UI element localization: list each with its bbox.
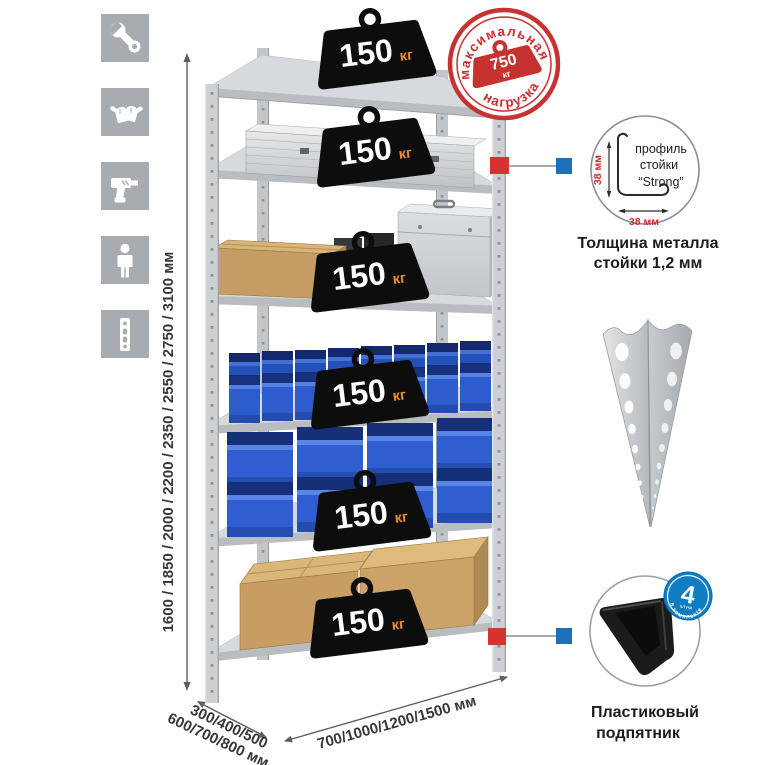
shelving-infographic: 1600 / 1850 / 2000 / 2200 / 2350 / 2550 … [0,0,765,765]
drill-icon [101,162,149,210]
profile-dim-horizontal: 38 мм [629,216,659,228]
rack-post-front-right [492,104,506,672]
callout-marker-top [490,157,572,174]
foot-caption: Пластиковый [591,704,699,721]
gloves-icon [101,88,149,136]
svg-text:кг: кг [394,509,409,527]
svg-text:150: 150 [336,130,393,172]
profile-dim-vertical: 38 мм [592,155,604,185]
svg-text:150: 150 [330,255,387,297]
depth-dimension: 300/400/500 600/700/800 мм [165,694,279,765]
sidebar-icons [101,14,149,358]
svg-text:“Strong”: “Strong” [638,175,683,189]
metal-post-image [603,320,692,527]
svg-text:стойки: стойки [640,158,678,172]
rack-post-icon [101,310,149,358]
width-dimension-label: 700/1000/1200/1500 мм [316,693,479,753]
svg-text:подпятник: подпятник [596,725,681,742]
badge-load-unit: кг [399,47,414,65]
svg-text:кг: кг [391,616,406,634]
foot-detail: 4 штуки в комплекте Пластиковый подпятни… [590,568,716,742]
svg-text:150: 150 [330,372,387,414]
svg-text:кг: кг [398,145,413,163]
weight-badge: 150 кг [309,102,436,188]
height-dimension-label: 1600 / 1850 / 2000 / 2200 / 2350 / 2550 … [160,252,177,633]
svg-text:стойки 1,2 мм: стойки 1,2 мм [594,255,703,272]
callout-marker-bottom [488,628,572,645]
svg-text:кг: кг [392,270,407,288]
person-icon [101,236,149,284]
infographic-canvas: 1600 / 1850 / 2000 / 2200 / 2350 / 2550 … [0,0,765,765]
svg-text:150: 150 [332,494,389,536]
svg-text:кг: кг [392,387,407,405]
badge-load-value: 150 [337,32,394,74]
height-dimension: 1600 / 1850 / 2000 / 2200 / 2350 / 2550 … [160,53,191,691]
svg-text:150: 150 [329,601,386,643]
weight-badge: 150 кг [310,4,437,90]
profile-label: профиль [635,142,687,156]
rack-post-front-left [205,84,219,703]
profile-caption: Толщина металла [577,235,718,252]
width-dimension: 700/1000/1200/1500 мм [284,676,508,753]
wrench-icon [101,14,149,62]
profile-detail: 38 мм 38 мм профиль стойки “Strong” Толщ… [577,116,718,272]
